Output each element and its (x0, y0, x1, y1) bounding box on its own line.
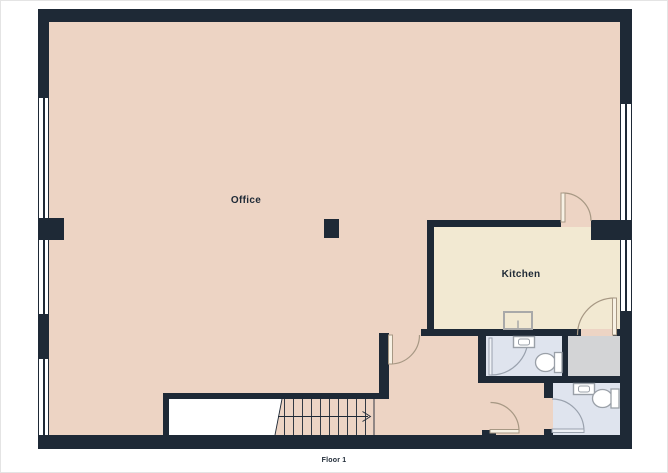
wall-stairwell-top (163, 393, 383, 399)
kitchen-label: Kitchen (474, 269, 568, 280)
wall-bathrooms-divider (478, 376, 632, 383)
office-label: Office (199, 195, 293, 206)
wall-hall-left (379, 333, 389, 399)
stairwell-void (169, 399, 282, 435)
floorplan-image: Office Kitchen Floor 1 (0, 0, 668, 473)
wall-exterior-right-lower (620, 311, 632, 435)
window-right-2 (620, 240, 632, 311)
bathroom-1-room (486, 336, 562, 376)
window-glass-line (43, 98, 45, 218)
bathroom-2-room (553, 383, 620, 435)
wall-kitchen-top (427, 220, 561, 227)
window-right-1 (620, 104, 632, 220)
wall-stairwell-left (163, 393, 169, 435)
storage-room (568, 336, 620, 376)
window-glass-line (625, 104, 627, 220)
window-glass-line (43, 359, 45, 435)
window-left-1 (38, 98, 49, 218)
wall-kitchen-bottom-right-stub (613, 329, 620, 336)
wall-storage-left (562, 329, 568, 383)
structural-column (324, 219, 339, 238)
window-glass-line (625, 240, 627, 311)
wall-bathroom-2-left-upper (544, 376, 553, 398)
wall-exterior-left-upper (38, 9, 49, 98)
wall-kitchen-left (427, 220, 434, 336)
wall-right-pier (591, 220, 632, 240)
window-left-3 (38, 359, 49, 435)
wall-exterior-top (38, 9, 632, 22)
wall-kitchen-bottom (421, 329, 581, 336)
floor-label: Floor 1 (1, 457, 667, 464)
window-left-2 (38, 240, 49, 314)
wall-left-pier (38, 218, 64, 240)
wall-exterior-right-upper (620, 9, 632, 104)
wall-exterior-bottom (38, 435, 632, 449)
window-glass-line (43, 240, 45, 314)
wall-exterior-left-lower (38, 314, 49, 359)
wall-entrance-hinge-block (482, 430, 496, 437)
wall-bathroom-2-left-lower (544, 429, 553, 437)
